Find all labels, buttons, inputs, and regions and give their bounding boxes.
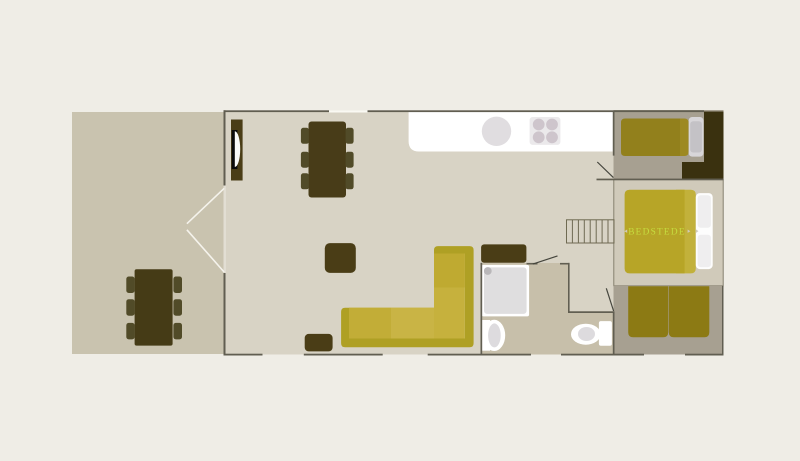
- svg-text:BEDSTEDE: BEDSTEDE: [628, 228, 686, 238]
